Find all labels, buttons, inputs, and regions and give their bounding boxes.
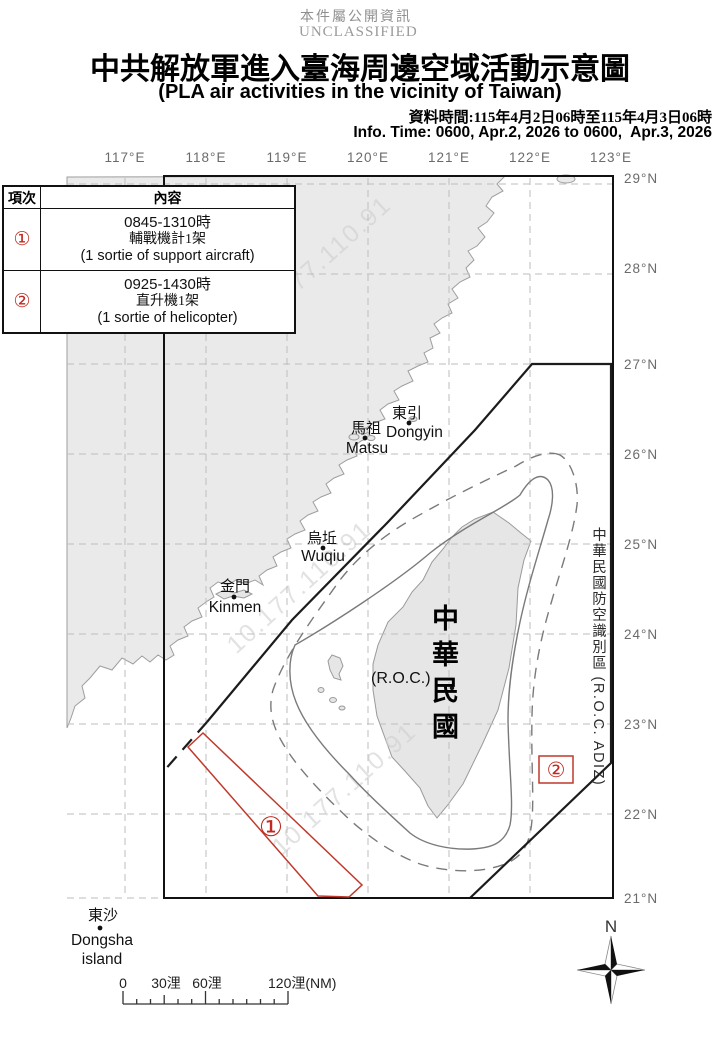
penghu-islands	[328, 655, 343, 680]
row2-type-en: (1 sortie of helicopter)	[97, 310, 237, 327]
dongyin-label-zh: 東引	[392, 405, 422, 422]
svg-text:118°E: 118°E	[186, 150, 227, 165]
svg-text:26°N: 26°N	[624, 447, 658, 462]
table-row: ① 0845-1310時 輔戰機計1架 (1 sortie of support…	[4, 208, 294, 270]
svg-text:30浬: 30浬	[151, 975, 181, 991]
svg-text:28°N: 28°N	[624, 261, 658, 276]
svg-text:121°E: 121°E	[428, 150, 470, 165]
roc-label-en: (R.O.C.)	[371, 670, 431, 687]
svg-text:23°N: 23°N	[624, 717, 658, 732]
svg-text:29°N: 29°N	[624, 171, 658, 186]
adiz-label: 中華民國防空識別區 (R.O.C. ADIZ)	[588, 527, 609, 786]
svg-text:24°N: 24°N	[624, 627, 658, 642]
svg-text:122°E: 122°E	[509, 150, 551, 165]
col-header-item: 項次	[4, 187, 41, 208]
activity-table: 項次 內容 ① 0845-1310時 輔戰機計1架 (1 sortie of s…	[2, 185, 296, 334]
svg-text:10.177.110.91: 10.177.110.91	[267, 717, 422, 861]
row1-type-zh: 輔戰機計1架	[129, 231, 206, 248]
row1-number: ①	[4, 209, 41, 270]
scale-bar	[123, 991, 288, 1004]
scale-bar-labels: 0 30浬 60浬 120浬(NM)	[119, 975, 336, 991]
matsu-label-zh: 馬祖	[351, 420, 381, 437]
row2-time: 0925-1430時	[124, 276, 211, 293]
svg-text:25°N: 25°N	[624, 537, 658, 552]
dongsha-label-en2: island	[82, 951, 123, 968]
svg-text:120浬(NM): 120浬(NM)	[268, 975, 336, 991]
longitude-labels: 117°E 118°E 119°E 120°E 121°E 122°E 123°…	[105, 150, 632, 165]
wuqiu-label-zh: 烏坵	[307, 530, 337, 547]
dongsha-dot	[98, 926, 103, 931]
latitude-labels: 29°N 28°N 27°N 26°N 25°N 24°N 23°N 22°N …	[624, 171, 658, 906]
kinmen-label-en: Kinmen	[209, 599, 262, 616]
activity-1-marker: ①	[259, 812, 283, 842]
activity-2-marker: ②	[547, 759, 566, 782]
kinmen-label-zh: 金門	[220, 578, 250, 595]
svg-text:119°E: 119°E	[267, 150, 308, 165]
row2-type-zh: 直升機1架	[136, 293, 199, 310]
row2-number: ②	[4, 271, 41, 332]
svg-text:117°E: 117°E	[105, 150, 146, 165]
svg-text:21°N: 21°N	[624, 891, 658, 906]
svg-text:22°N: 22°N	[624, 807, 658, 822]
compass-rose: N	[577, 917, 645, 1004]
row1-type-en: (1 sortie of support aircraft)	[80, 248, 254, 265]
table-row: ② 0925-1430時 直升機1架 (1 sortie of helicopt…	[4, 270, 294, 332]
row1-time: 0845-1310時	[124, 214, 211, 231]
svg-text:120°E: 120°E	[347, 150, 389, 165]
svg-text:27°N: 27°N	[624, 357, 658, 372]
wuqiu-label-en: Wuqiu	[301, 548, 345, 565]
activity-table-header: 項次 內容	[4, 187, 294, 208]
svg-text:0: 0	[119, 975, 127, 991]
dongsha-label-zh: 東沙	[88, 907, 118, 924]
taiwan-label-zh: 中華民國	[424, 604, 463, 748]
pla-activity-report: 本件屬公開資訊 UNCLASSIFIED 中共解放軍進入臺海周邊空域活動示意圖 …	[0, 0, 720, 1040]
svg-text:123°E: 123°E	[590, 150, 632, 165]
svg-text:60浬: 60浬	[192, 975, 222, 991]
taiwan-adiz-map: 10.177.110.91 10.177.110.91 10.177.110.9…	[0, 0, 720, 1040]
matsu-label-en: Matsu	[346, 440, 388, 457]
dongyin-label-en: Dongyin	[386, 424, 443, 441]
compass-n-label: N	[605, 917, 617, 936]
dongsha-label-en1: Dongsha	[71, 932, 133, 949]
col-header-content: 內容	[41, 187, 294, 208]
